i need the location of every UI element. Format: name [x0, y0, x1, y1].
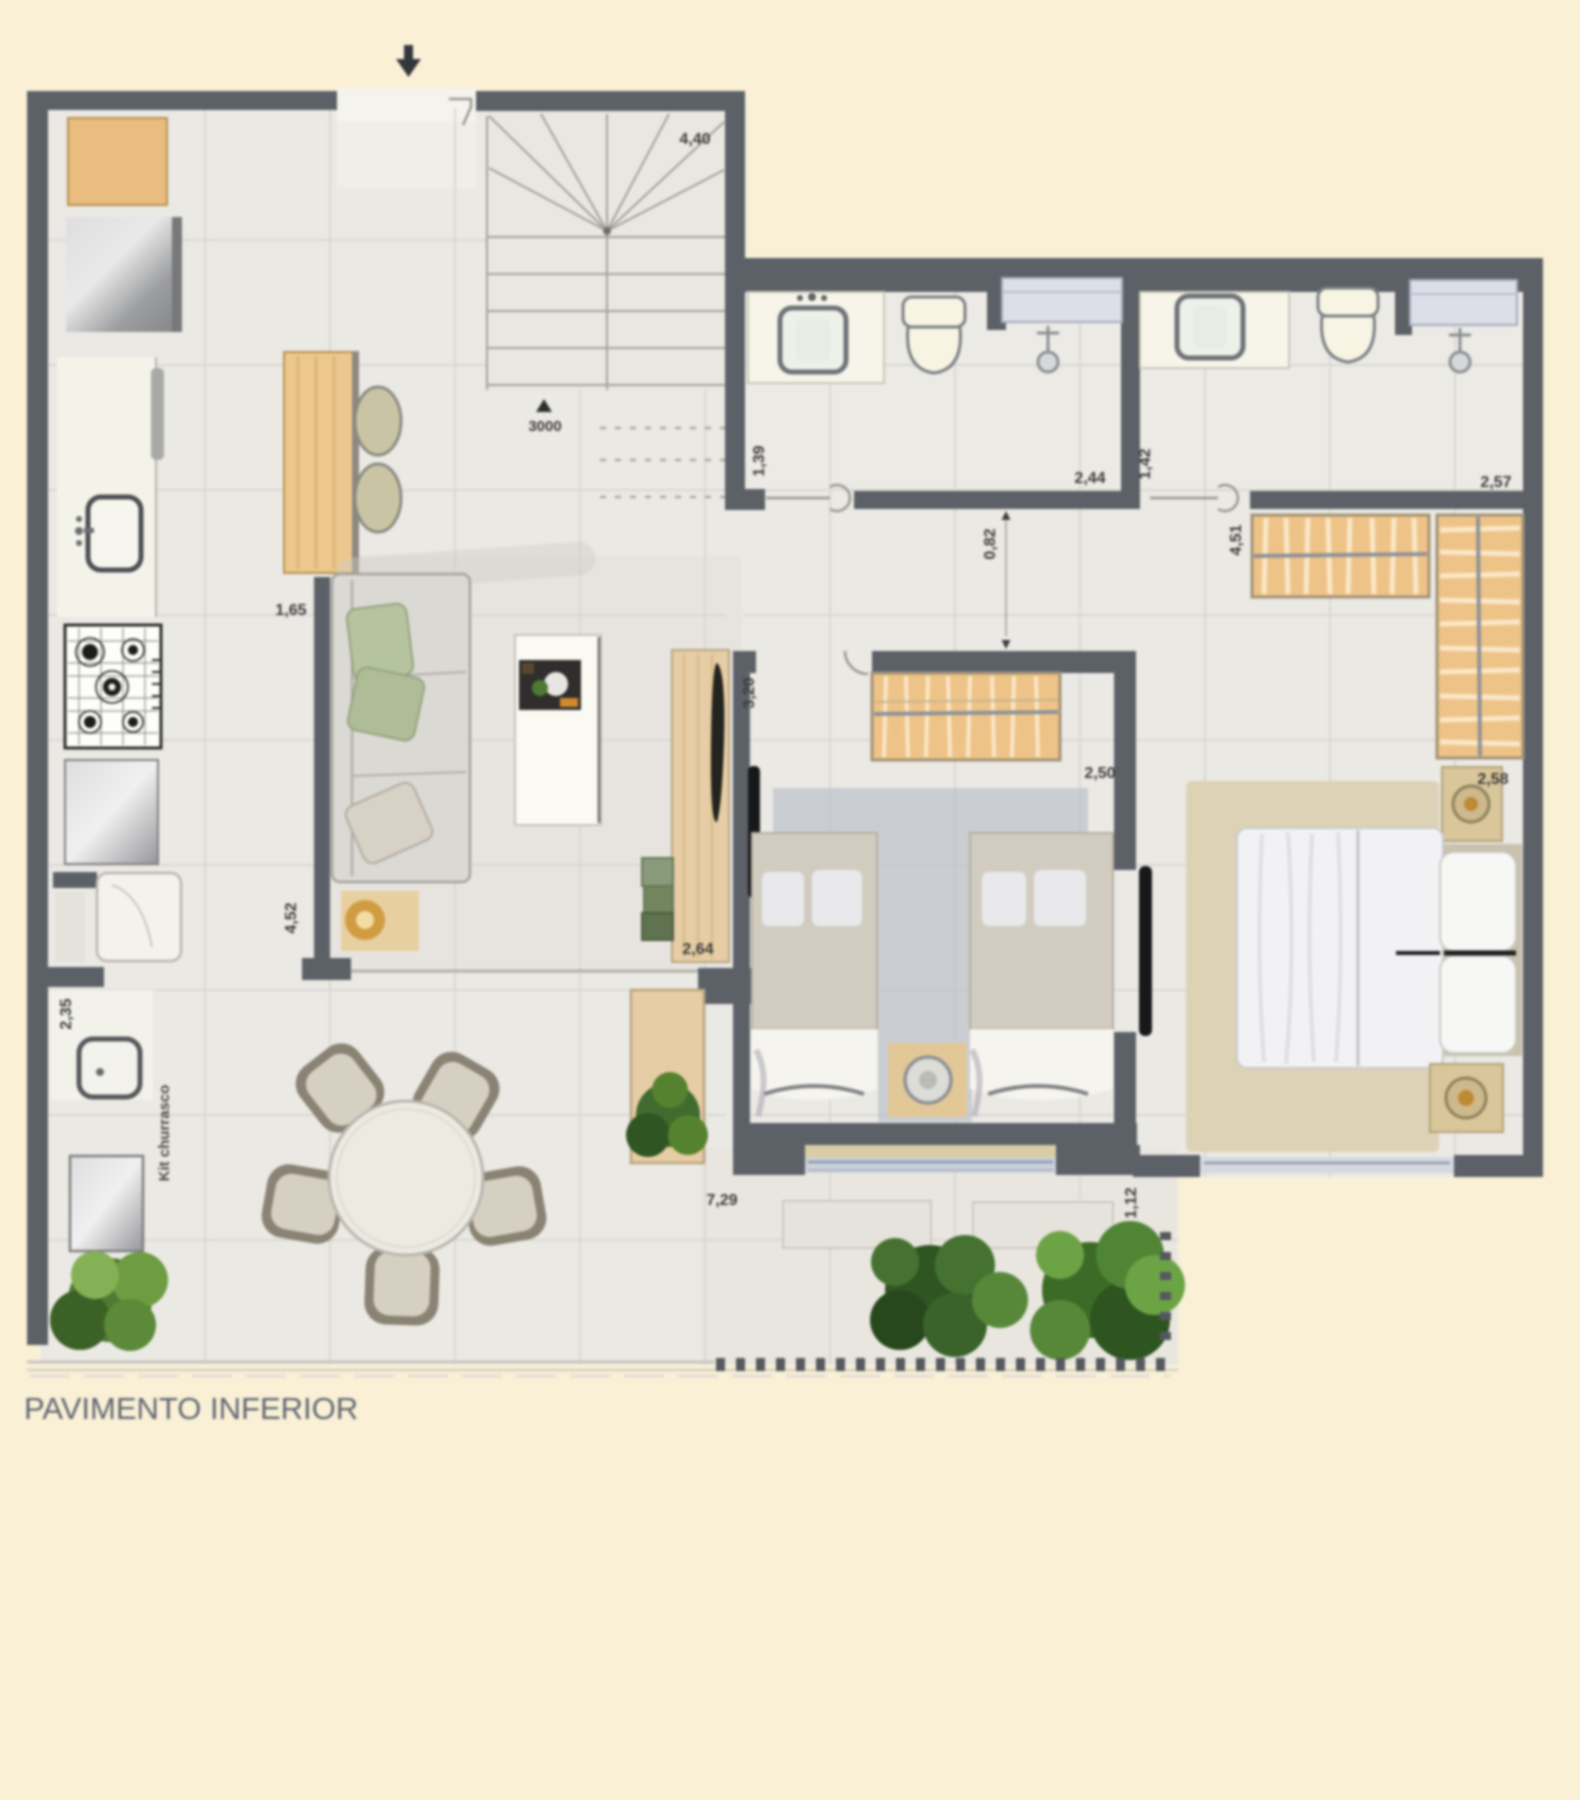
svg-text:2,50: 2,50 [1084, 765, 1115, 782]
svg-text:2,35: 2,35 [58, 998, 75, 1029]
svg-text:1,65: 1,65 [275, 602, 306, 619]
svg-text:1,42: 1,42 [1137, 448, 1154, 479]
svg-text:4,40: 4,40 [679, 131, 710, 148]
svg-text:3000: 3000 [528, 418, 561, 435]
svg-text:1,12: 1,12 [1123, 1187, 1140, 1218]
svg-text:2,44: 2,44 [1074, 470, 1105, 487]
svg-text:0,82: 0,82 [982, 528, 999, 559]
svg-text:3,20: 3,20 [741, 677, 758, 708]
svg-text:2,58: 2,58 [1477, 771, 1508, 788]
svg-text:Kit churrasco: Kit churrasco [156, 1085, 173, 1182]
svg-text:1,39: 1,39 [751, 445, 768, 476]
svg-text:4,51: 4,51 [1228, 524, 1245, 555]
svg-text:4,52: 4,52 [283, 902, 300, 933]
svg-text:7,29: 7,29 [706, 1192, 737, 1209]
svg-text:2,64: 2,64 [682, 941, 713, 958]
svg-text:2,57: 2,57 [1480, 474, 1511, 491]
svg-text:PAVIMENTO INFERIOR: PAVIMENTO INFERIOR [24, 1391, 358, 1426]
